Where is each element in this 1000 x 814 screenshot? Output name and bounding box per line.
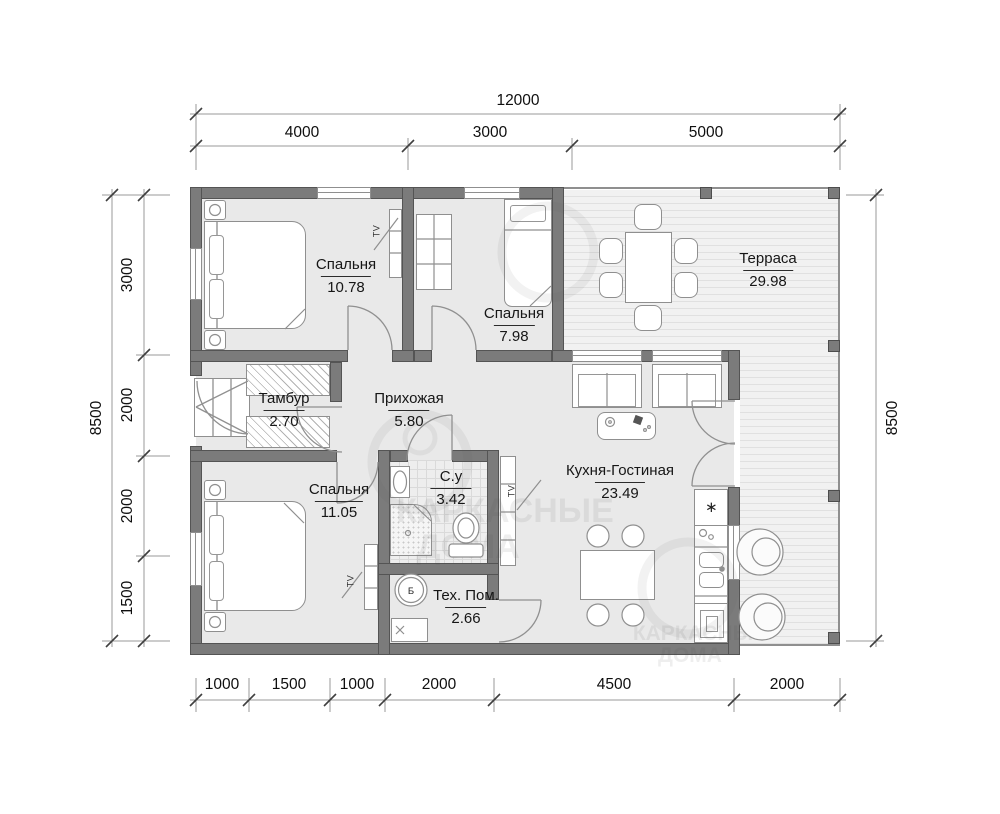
window (317, 187, 371, 199)
kitchen-sink (699, 572, 724, 588)
room-label-bedroom-2: Спальня 7.98 (481, 305, 547, 346)
chair (599, 238, 623, 264)
chair (599, 272, 623, 298)
room-name: С.у (430, 468, 471, 488)
window (652, 350, 722, 362)
dim-bottom: 2000 (422, 676, 456, 694)
shower (390, 504, 432, 556)
tv-label: TV (506, 485, 516, 498)
room-label-terrace: Терраса 29.98 (736, 250, 800, 291)
dim-top: 3000 (473, 124, 507, 142)
window (464, 187, 520, 199)
sofa (652, 364, 722, 408)
dining-table (625, 232, 672, 303)
entrance-porch (194, 378, 250, 437)
terrace-deck-right (740, 350, 840, 646)
wardrobe (416, 214, 452, 290)
sofa (572, 364, 642, 408)
dim-right-total: 8500 (884, 401, 902, 435)
dim-left: 2000 (119, 388, 137, 422)
coffee-table (597, 412, 656, 440)
nightstand (204, 480, 226, 500)
room-label-bathroom: С.у 3.42 (430, 468, 471, 509)
wall (190, 350, 348, 362)
chair (634, 204, 662, 230)
single-bed (504, 199, 552, 307)
tv-cabinet (364, 544, 378, 610)
wall (390, 450, 408, 462)
stove (694, 603, 728, 643)
terrace-edge-bottom (740, 644, 840, 646)
room-area: 11.05 (315, 501, 363, 522)
wall (487, 450, 499, 600)
tv-label: TV (371, 225, 381, 238)
terrace-edge-right (838, 187, 840, 646)
room-name: Прихожая (371, 390, 447, 410)
room-name: Спальня (481, 305, 547, 325)
room-label-bedroom-3: Спальня 11.05 (306, 481, 372, 522)
room-name: Кухня-Гостиная (563, 462, 677, 482)
wall (402, 187, 414, 362)
room-label-kitchen-living: Кухня-Гостиная 23.49 (563, 462, 677, 503)
room-area: 10.78 (321, 276, 371, 297)
tv-label: TV (345, 575, 355, 588)
dim-left: 3000 (119, 258, 137, 292)
terrace-post (828, 340, 840, 352)
dim-top-total: 12000 (496, 92, 539, 110)
window (190, 248, 202, 300)
dim-top: 4000 (285, 124, 319, 142)
room-area: 2.66 (445, 607, 486, 628)
chair (674, 238, 698, 264)
fridge-icon: ∗ (705, 498, 718, 516)
room-name: Тамбур (256, 390, 313, 410)
wall (190, 643, 740, 655)
tv-cabinet (500, 456, 516, 566)
dim-top: 5000 (689, 124, 723, 142)
nightstand (204, 200, 226, 220)
room-area: 29.98 (743, 270, 793, 291)
chair (674, 272, 698, 298)
room-area: 5.80 (388, 410, 429, 431)
room-name: Спальня (306, 481, 372, 501)
window (728, 525, 740, 580)
tv-cabinet (389, 209, 402, 278)
room-name: Спальня (313, 256, 379, 276)
room-area: 2.70 (263, 410, 304, 431)
dim-left: 2000 (119, 489, 137, 523)
kitchen-sink (699, 552, 724, 568)
wall (728, 350, 740, 400)
room-area: 7.98 (493, 325, 534, 346)
room-area: 23.49 (595, 482, 645, 503)
terrace-post (828, 632, 840, 644)
dim-bottom: 1500 (272, 676, 306, 694)
washing-machine (391, 618, 428, 642)
floor-plan: TV TV TV ∗ (0, 0, 1000, 814)
wall (190, 450, 337, 462)
terrace-post (700, 187, 712, 199)
room-label-tambur: Тамбур 2.70 (256, 390, 313, 431)
wall (476, 350, 552, 362)
wall (378, 563, 499, 575)
chair (634, 305, 662, 331)
dim-bottom: 2000 (770, 676, 804, 694)
nightstand (204, 612, 226, 632)
terrace-post (828, 490, 840, 502)
room-area: 3.42 (430, 488, 471, 509)
window (572, 350, 642, 362)
sink (390, 466, 410, 498)
wall (330, 362, 342, 402)
wall (414, 350, 432, 362)
kitchen-table (580, 550, 655, 600)
room-label-hallway: Прихожая 5.80 (371, 390, 447, 431)
room-label-bedroom-1: Спальня 10.78 (313, 256, 379, 297)
wall (552, 187, 564, 362)
dim-left: 1500 (119, 581, 137, 615)
dim-bottom: 1000 (340, 676, 374, 694)
room-name: Тех. Пом. (430, 587, 502, 607)
double-bed (204, 501, 306, 611)
window (190, 532, 202, 586)
terrace-post (828, 187, 840, 199)
room-label-tech-room: Тех. Пом. 2.66 (430, 587, 502, 628)
wall (392, 350, 414, 362)
double-bed (204, 221, 306, 329)
dim-bottom: 4500 (597, 676, 631, 694)
room-name: Терраса (736, 250, 800, 270)
nightstand (204, 330, 226, 350)
dim-left-total: 8500 (88, 401, 106, 435)
dim-bottom: 1000 (205, 676, 239, 694)
wall (378, 450, 390, 655)
